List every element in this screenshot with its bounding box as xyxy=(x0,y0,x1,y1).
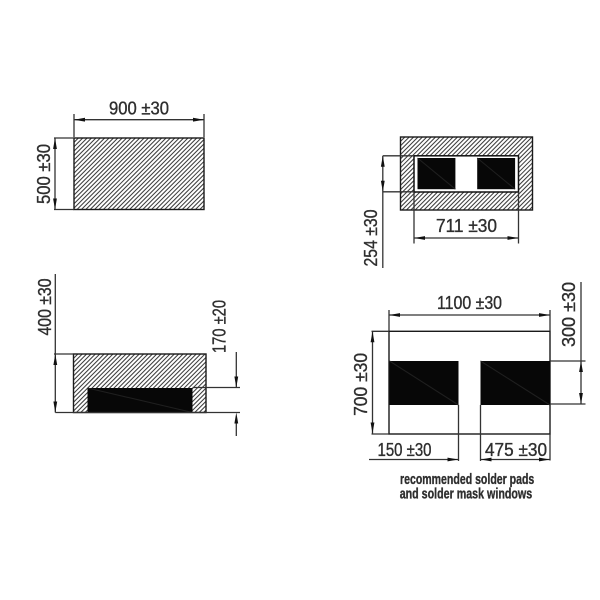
svg-text:475 ±30: 475 ±30 xyxy=(485,440,547,460)
svg-text:recommended solder pads: recommended solder pads xyxy=(400,472,534,488)
svg-text:170 ±20: 170 ±20 xyxy=(210,300,230,353)
svg-text:700 ±30: 700 ±30 xyxy=(351,353,371,416)
svg-text:300 ±30: 300 ±30 xyxy=(559,282,579,347)
svg-text:150 ±30: 150 ±30 xyxy=(378,440,432,460)
svg-text:and solder mask windows: and solder mask windows xyxy=(400,487,533,503)
svg-text:500 ±30: 500 ±30 xyxy=(34,144,54,204)
svg-text:711 ±30: 711 ±30 xyxy=(436,216,497,236)
svg-text:1100 ±30: 1100 ±30 xyxy=(437,293,502,313)
svg-text:400 ±30: 400 ±30 xyxy=(35,279,55,336)
svg-text:900 ±30: 900 ±30 xyxy=(109,99,169,119)
svg-text:254 ±30: 254 ±30 xyxy=(361,210,381,267)
